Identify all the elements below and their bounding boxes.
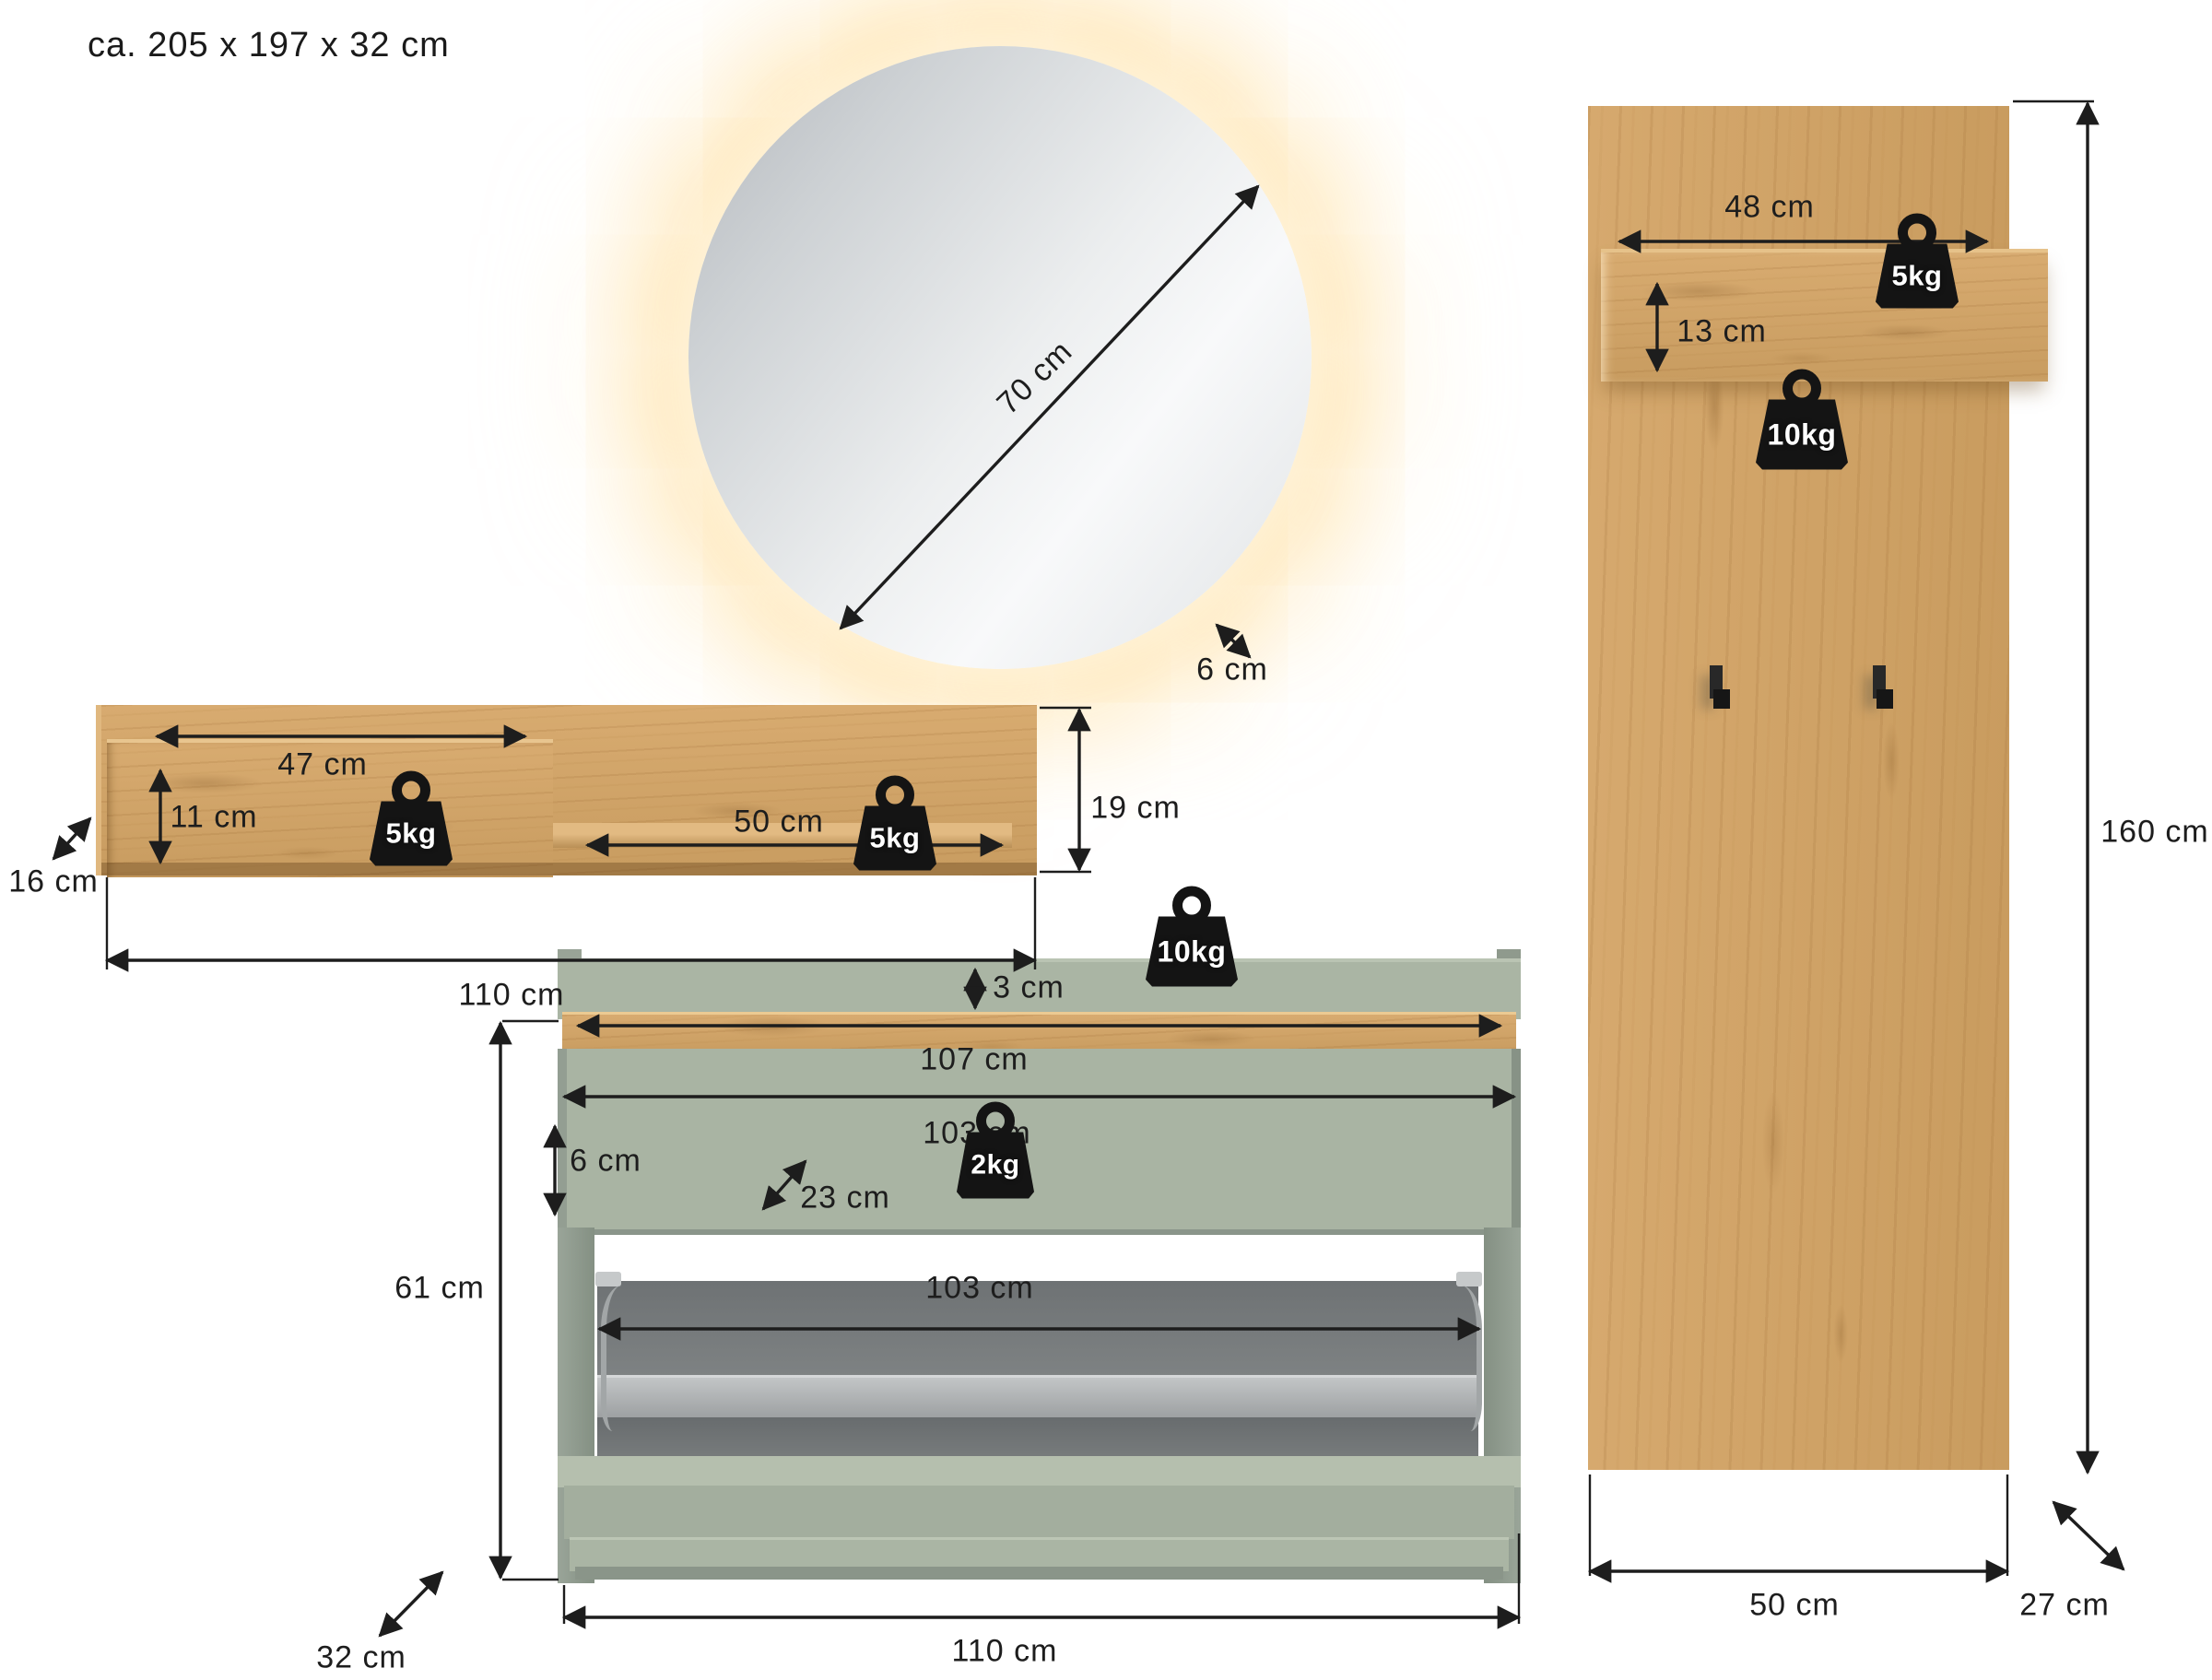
bench-base-top — [558, 1456, 1521, 1487]
flap-hinge-left-icon — [601, 1286, 630, 1431]
weight-label: 5kg — [1876, 244, 1959, 309]
weight-capacity-icon: 2kg — [957, 1102, 1034, 1199]
bench-open-flap-back — [597, 1281, 1478, 1377]
furniture-dimensions-diagram: ca. 205 x 197 x 32 cm — [0, 0, 2212, 1680]
bench-open-flap-lip — [597, 1375, 1478, 1420]
dim-shelf-depth — [53, 818, 90, 859]
wardrobe-panel-shelf-box — [1601, 249, 2048, 382]
weight-capacity-icon: 5kg — [370, 771, 453, 866]
flap-hinge-cap-right-icon — [1456, 1272, 1482, 1286]
flap-hinge-cap-left-icon — [595, 1272, 621, 1286]
panel-depth-label: 27 cm — [2019, 1588, 2110, 1624]
shelf-side-height-label: 19 cm — [1090, 791, 1181, 827]
weight-capacity-icon: 5kg — [853, 776, 936, 871]
weight-capacity-icon: 10kg — [1146, 887, 1238, 987]
weight-label: 10kg — [1146, 917, 1238, 987]
weight-label: 10kg — [1756, 400, 1848, 470]
bench-opening-width-label: 103 cm — [925, 1271, 1034, 1307]
bench-open-flap-lower — [597, 1417, 1478, 1458]
coat-hook-right-icon — [1873, 665, 1886, 699]
shelf-left-height-label: 11 cm — [170, 800, 257, 836]
shelf-right-width-label: 50 cm — [734, 805, 824, 840]
panel-width-label: 50 cm — [1749, 1588, 1840, 1624]
bench-base-shadow — [575, 1567, 1503, 1580]
bench-wood-top — [562, 1012, 1516, 1053]
weight-label: 5kg — [370, 802, 453, 866]
panel-height-label: 160 cm — [2100, 815, 2209, 851]
bench-flap-depth-label: 23 cm — [800, 1181, 890, 1216]
panel-shelf-width-label: 48 cm — [1724, 190, 1815, 226]
shelf-left-width-label: 47 cm — [277, 747, 368, 783]
shelf-depth-label: 16 cm — [8, 864, 99, 900]
bench-rim-height-label: 3 cm — [993, 970, 1065, 1006]
dim-panel-depth — [2053, 1502, 2124, 1569]
weight-capacity-icon: 5kg — [1876, 214, 1959, 309]
bench-height-label: 61 cm — [394, 1271, 485, 1307]
bench-flap-height-label: 6 cm — [570, 1144, 641, 1180]
flap-hinge-right-icon — [1453, 1286, 1482, 1431]
weight-capacity-icon: 10kg — [1756, 370, 1848, 470]
panel-shelf-height-label: 13 cm — [1677, 314, 1767, 350]
coat-hook-left-icon — [1710, 665, 1723, 699]
bench-top-width-label: 107 cm — [920, 1042, 1029, 1078]
bench-total-width-label: 110 cm — [952, 1634, 1058, 1670]
bench-front-flap — [558, 1049, 1521, 1235]
round-led-mirror — [688, 46, 1312, 669]
bench-base-mid — [564, 1486, 1514, 1539]
shelf-total-width-label: 110 cm — [459, 978, 565, 1014]
weight-label: 2kg — [957, 1133, 1034, 1199]
weight-label: 5kg — [853, 806, 936, 871]
bench-depth-label: 32 cm — [316, 1640, 406, 1676]
overall-dimensions-title: ca. 205 x 197 x 32 cm — [88, 26, 450, 65]
dim-bench-depth — [380, 1572, 442, 1636]
mirror-depth-label: 6 cm — [1196, 652, 1268, 688]
